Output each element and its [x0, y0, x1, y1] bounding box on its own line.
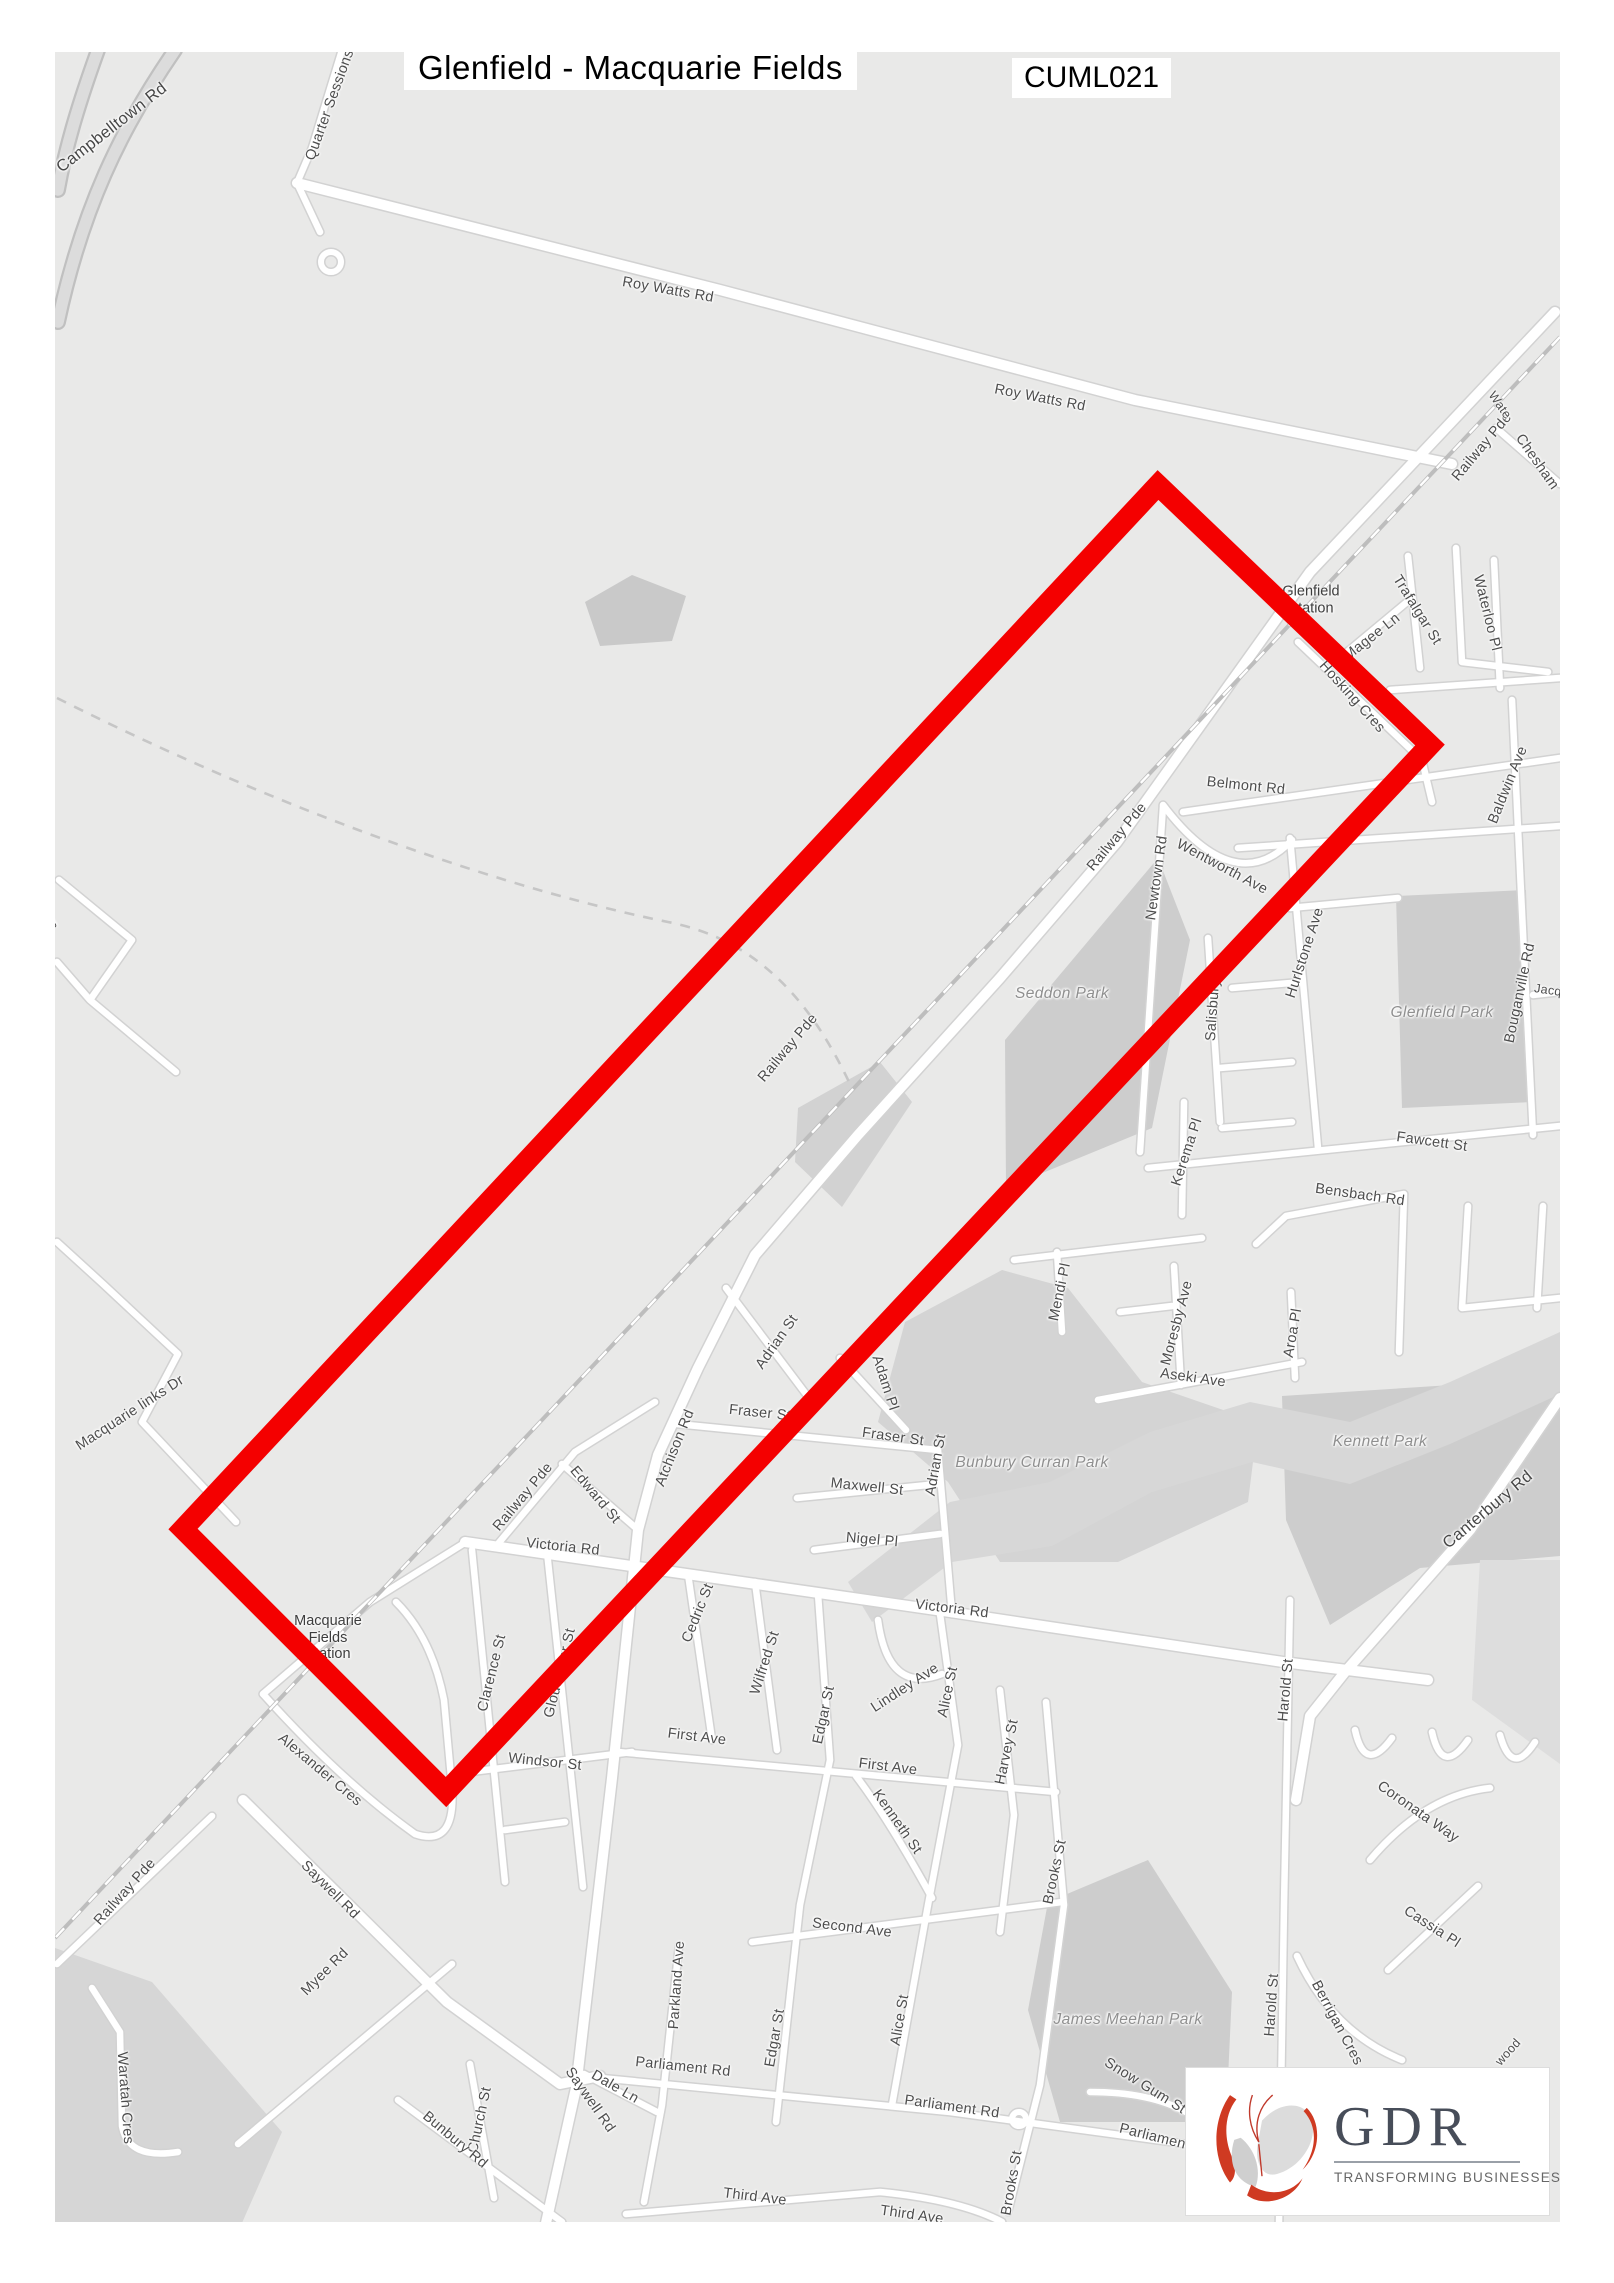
logo-tagline: TRANSFORMING BUSINESSES — [1334, 2170, 1561, 2185]
map-document: { "title": "Glenfield - Macquarie Fields… — [0, 0, 1614, 2283]
gdr-logo: GDR TRANSFORMING BUSINESSES — [1185, 2067, 1550, 2216]
gdr-butterfly-icon — [1198, 2078, 1326, 2206]
map-code-label: CUML021 — [1012, 58, 1171, 98]
red-extent-overlay — [0, 0, 1614, 2283]
page-title: Glenfield - Macquarie Fields — [404, 46, 857, 90]
logo-divider — [1334, 2161, 1520, 2163]
study-area-rectangle — [183, 485, 1430, 1792]
logo-wordmark: GDR — [1334, 2099, 1561, 2155]
map-canvas: Campbelltown RdQuarter SessionsRoy Watts… — [0, 0, 1614, 2283]
